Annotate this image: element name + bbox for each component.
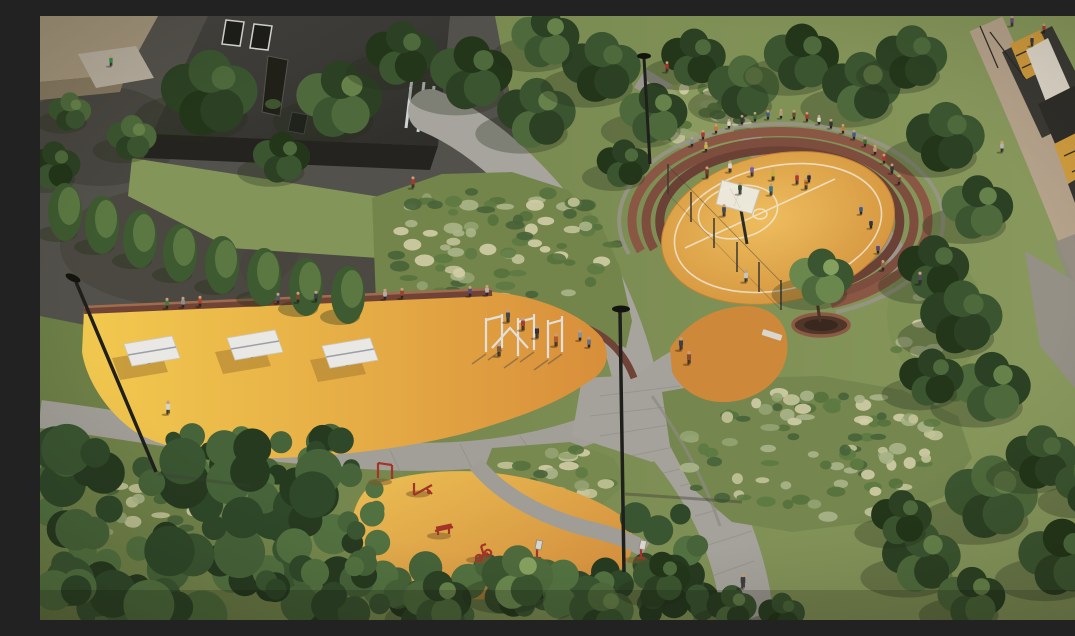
- scene-canvas: [40, 16, 1075, 620]
- vignette: [40, 16, 1075, 620]
- bottom-shade: [40, 590, 1075, 620]
- park-aerial-rendering: [40, 16, 1075, 620]
